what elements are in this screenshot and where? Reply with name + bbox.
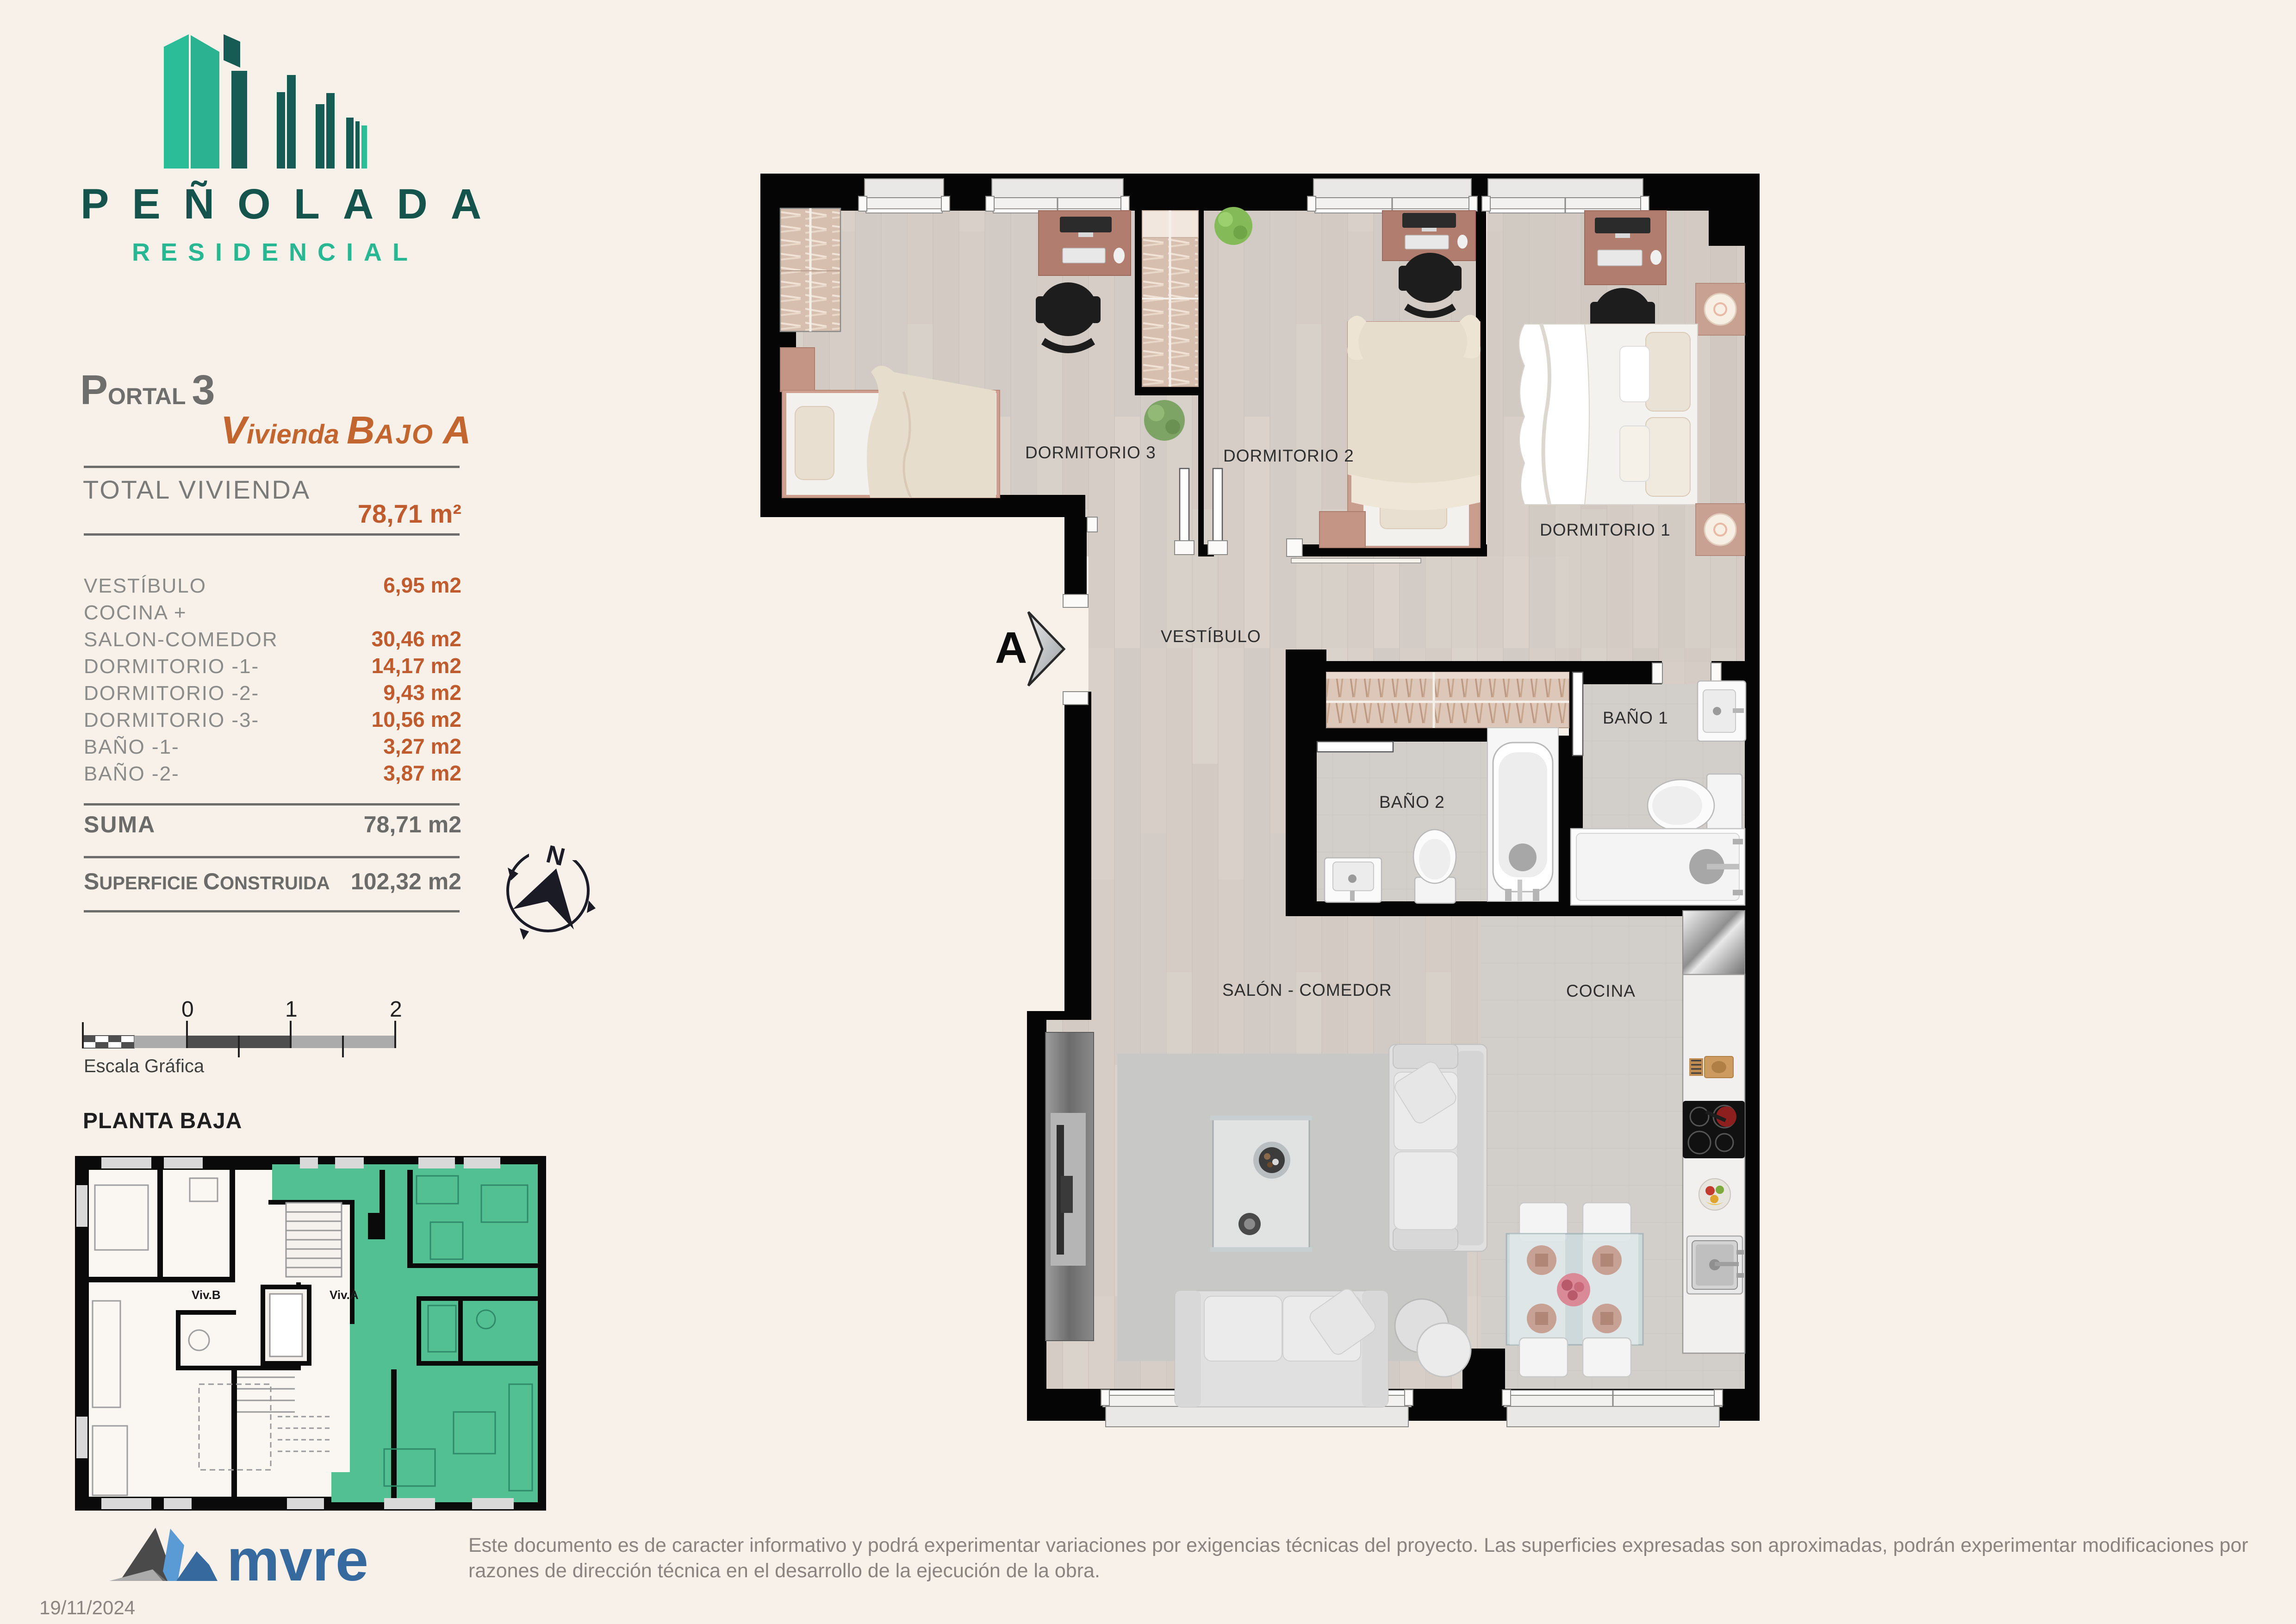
svg-text:BAÑO 1: BAÑO 1 <box>1603 708 1668 727</box>
svg-text:1: 1 <box>285 997 298 1022</box>
svg-text:DORMITORIO -3-: DORMITORIO -3- <box>84 709 259 731</box>
svg-text:10,56 m2: 10,56 m2 <box>372 707 461 731</box>
svg-text:mvre: mvre <box>227 1527 368 1593</box>
svg-text:Viv.B: Viv.B <box>192 1288 221 1302</box>
svg-text:TOTAL VIVIENDA: TOTAL VIVIENDA <box>83 475 311 504</box>
svg-text:SUMA: SUMA <box>84 812 156 837</box>
svg-text:78,71 m²: 78,71 m² <box>358 499 461 528</box>
svg-text:6,95 m2: 6,95 m2 <box>383 573 461 597</box>
svg-text:3,87 m2: 3,87 m2 <box>383 761 461 785</box>
svg-text:2: 2 <box>390 997 402 1022</box>
svg-text:PEÑOLADA: PEÑOLADA <box>81 180 504 228</box>
svg-text:BAÑO 2: BAÑO 2 <box>1379 793 1445 812</box>
svg-text:DORMITORIO -2-: DORMITORIO -2- <box>84 682 259 705</box>
svg-text:78,71 m2: 78,71 m2 <box>364 812 461 837</box>
svg-text:PLANTA BAJA: PLANTA BAJA <box>83 1109 242 1133</box>
svg-text:14,17 m2: 14,17 m2 <box>372 654 461 678</box>
svg-text:Escala Gráfica: Escala Gráfica <box>84 1056 205 1076</box>
svg-text:30,46 m2: 30,46 m2 <box>372 627 461 651</box>
svg-text:DORMITORIO 2: DORMITORIO 2 <box>1223 446 1354 465</box>
svg-text:COCINA +: COCINA + <box>84 601 187 624</box>
svg-text:razones de dirección técnica e: razones de dirección técnica en el desar… <box>468 1560 1100 1582</box>
svg-text:102,32 m2: 102,32 m2 <box>351 868 461 894</box>
svg-text:SALON-COMEDOR: SALON-COMEDOR <box>84 628 278 651</box>
svg-text:COCINA: COCINA <box>1566 981 1636 1000</box>
svg-text:9,43 m2: 9,43 m2 <box>383 681 461 705</box>
svg-text:DORMITORIO 1: DORMITORIO 1 <box>1540 520 1671 539</box>
svg-text:3,27 m2: 3,27 m2 <box>383 734 461 758</box>
svg-text:RESIDENCIAL: RESIDENCIAL <box>132 238 418 266</box>
svg-text:SALÓN - COMEDOR: SALÓN - COMEDOR <box>1222 981 1392 999</box>
svg-text:Este documento es de caracter: Este documento es de caracter informativ… <box>468 1534 2248 1556</box>
svg-text:DORMITORIO 3: DORMITORIO 3 <box>1025 443 1156 462</box>
svg-text:BAÑO -2-: BAÑO -2- <box>84 762 180 785</box>
svg-text:0: 0 <box>181 997 194 1022</box>
svg-text:VESTÍBULO: VESTÍBULO <box>84 575 206 597</box>
svg-text:DORMITORIO -1-: DORMITORIO -1- <box>84 655 259 678</box>
svg-text:19/11/2024: 19/11/2024 <box>39 1597 135 1618</box>
svg-text:Viv.A: Viv.A <box>330 1288 359 1302</box>
svg-text:VESTÍBULO: VESTÍBULO <box>1161 627 1261 646</box>
svg-text:A: A <box>995 623 1027 673</box>
svg-text:BAÑO -1-: BAÑO -1- <box>84 735 180 758</box>
